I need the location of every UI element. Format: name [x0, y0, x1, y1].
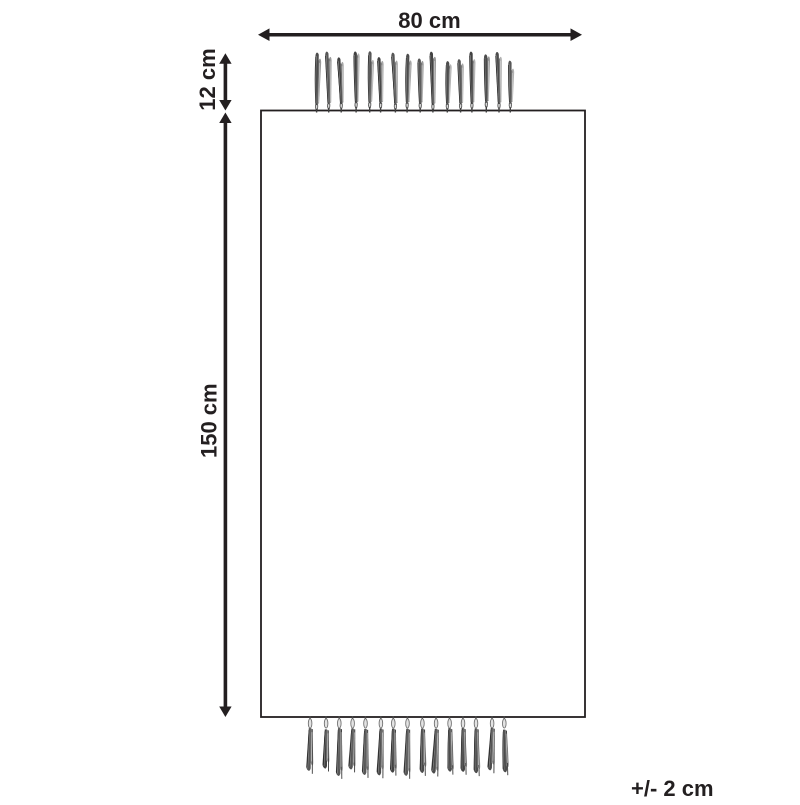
svg-text:150 cm: 150 cm [197, 383, 222, 458]
svg-text:80 cm: 80 cm [398, 8, 460, 33]
svg-text:12 cm: 12 cm [195, 48, 220, 110]
svg-text:+/- 2 cm: +/- 2 cm [631, 776, 714, 800]
